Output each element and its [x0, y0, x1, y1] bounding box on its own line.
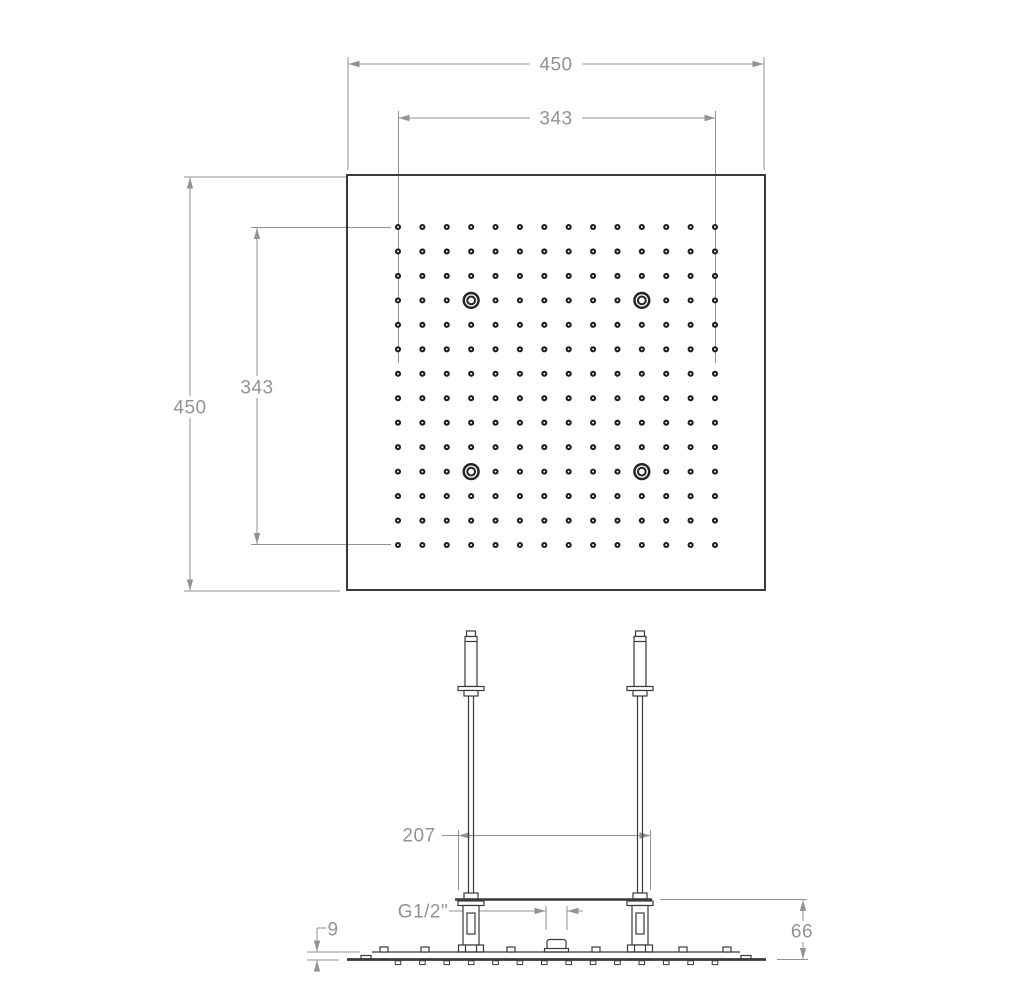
spray-nozzle: [395, 346, 401, 352]
spray-nozzle: [639, 493, 645, 499]
plate-nozzle-tab: [420, 961, 426, 965]
pipe-lower-nut: [464, 893, 478, 899]
spray-nozzle: [492, 224, 498, 230]
spray-nozzle: [444, 420, 450, 426]
spray-nozzle: [688, 224, 694, 230]
spray-nozzle: [517, 224, 523, 230]
spray-nozzle: [712, 420, 718, 426]
spray-nozzle: [614, 224, 620, 230]
spray-nozzle: [639, 322, 645, 328]
spray-nozzle: [395, 273, 401, 279]
spray-nozzle: [639, 542, 645, 548]
spray-nozzle: [614, 542, 620, 548]
spray-nozzle: [639, 273, 645, 279]
plate-nozzle-tab: [615, 961, 621, 965]
spray-nozzle: [639, 517, 645, 523]
spray-nozzle: [639, 395, 645, 401]
spray-nozzle: [688, 322, 694, 328]
dimension-label: 343: [240, 378, 273, 399]
plate-nozzle-tab: [444, 961, 450, 965]
plate-nozzle-tab: [517, 961, 523, 965]
pipe-cap: [467, 631, 476, 637]
shower-head-technical-drawing: 450 343 450 343: [0, 0, 1029, 1000]
spray-nozzle: [517, 346, 523, 352]
spray-nozzle: [541, 420, 547, 426]
spray-nozzle: [517, 248, 523, 254]
spray-nozzle: [419, 395, 425, 401]
spray-nozzle: [566, 444, 572, 450]
spray-nozzle: [492, 248, 498, 254]
spray-nozzle: [688, 444, 694, 450]
plate-nozzle-tab: [712, 961, 718, 965]
spray-nozzle: [688, 346, 694, 352]
spray-nozzle: [492, 444, 498, 450]
spray-nozzle: [517, 493, 523, 499]
plate-top-clip: [679, 947, 687, 952]
spray-nozzle: [419, 273, 425, 279]
spray-nozzle: [614, 346, 620, 352]
spray-nozzle: [419, 420, 425, 426]
spray-nozzle: [492, 469, 498, 475]
spray-nozzle: [444, 346, 450, 352]
spray-nozzle: [541, 444, 547, 450]
spray-nozzle: [663, 248, 669, 254]
spray-nozzle: [639, 224, 645, 230]
spray-nozzle: [590, 493, 596, 499]
spray-nozzle: [566, 346, 572, 352]
spray-nozzle: [492, 273, 498, 279]
spray-nozzle: [444, 493, 450, 499]
spray-nozzle: [468, 493, 474, 499]
dim-pipe-spacing: 207: [402, 826, 650, 891]
spray-nozzle: [688, 395, 694, 401]
spray-nozzle: [590, 420, 596, 426]
spray-nozzle: [444, 297, 450, 303]
spray-nozzle: [712, 297, 718, 303]
plate-top-clip: [421, 947, 429, 952]
spray-nozzle: [395, 420, 401, 426]
spray-nozzle: [541, 248, 547, 254]
spray-nozzle: [395, 371, 401, 377]
spray-nozzle: [419, 297, 425, 303]
spray-nozzle: [444, 444, 450, 450]
pipe-upper-tube: [465, 637, 477, 687]
spray-nozzle: [712, 493, 718, 499]
spray-nozzle: [517, 273, 523, 279]
spray-nozzle: [419, 322, 425, 328]
spray-nozzle: [712, 395, 718, 401]
spray-nozzle: [590, 371, 596, 377]
spray-nozzle: [688, 493, 694, 499]
spray-nozzle: [444, 322, 450, 328]
spray-nozzle: [712, 517, 718, 523]
spray-nozzle: [517, 517, 523, 523]
spray-nozzle: [468, 542, 474, 548]
plate-nozzle-row: [395, 961, 718, 965]
spray-nozzle: [517, 444, 523, 450]
spray-nozzle: [517, 542, 523, 548]
plate-nozzle-tab: [639, 961, 645, 965]
spray-nozzle: [541, 322, 547, 328]
spray-nozzle: [688, 248, 694, 254]
spray-nozzle: [590, 469, 596, 475]
spray-nozzle: [395, 297, 401, 303]
plate-top-clip: [723, 947, 731, 952]
side-view-elevation: 207 G1/2" 9 66: [307, 631, 817, 969]
spray-nozzle: [541, 493, 547, 499]
spray-nozzle: [663, 273, 669, 279]
spray-nozzle: [468, 273, 474, 279]
spray-nozzle: [492, 297, 498, 303]
spray-nozzle: [541, 273, 547, 279]
spray-nozzle: [712, 371, 718, 377]
spray-nozzle: [590, 517, 596, 523]
spray-nozzle: [517, 371, 523, 377]
spray-nozzle: [688, 420, 694, 426]
spray-nozzle: [566, 224, 572, 230]
spray-nozzle: [566, 297, 572, 303]
spray-nozzle: [541, 371, 547, 377]
spray-nozzle: [614, 493, 620, 499]
spray-nozzle: [419, 346, 425, 352]
spray-nozzle: [663, 420, 669, 426]
spray-nozzle: [492, 322, 498, 328]
spray-nozzle: [444, 273, 450, 279]
spray-nozzle: [590, 346, 596, 352]
dim-plate-thickness: 9: [307, 920, 360, 970]
spray-nozzle: [541, 517, 547, 523]
spray-nozzle: [395, 395, 401, 401]
spray-nozzle: [590, 322, 596, 328]
spray-nozzle: [614, 297, 620, 303]
plate-nozzle-tab: [566, 961, 572, 965]
spray-nozzle: [395, 224, 401, 230]
plate-nozzle-tab: [688, 961, 694, 965]
spray-fitting: [634, 293, 649, 308]
pipe-foot: [459, 945, 484, 952]
plate-nozzle-tab: [590, 961, 596, 965]
spray-nozzle: [541, 224, 547, 230]
spray-nozzle: [663, 517, 669, 523]
spray-nozzle: [688, 273, 694, 279]
spray-nozzle: [492, 395, 498, 401]
inlet-body: [547, 940, 566, 950]
spray-nozzle: [468, 346, 474, 352]
spray-nozzle: [468, 322, 474, 328]
pipe-lower-flange: [458, 901, 484, 906]
spray-nozzle: [492, 493, 498, 499]
spray-nozzle: [492, 371, 498, 377]
spray-fitting: [464, 464, 479, 479]
spray-nozzle: [517, 420, 523, 426]
spray-nozzle: [663, 371, 669, 377]
spray-nozzle: [688, 517, 694, 523]
spray-nozzle: [614, 444, 620, 450]
spray-nozzle: [688, 371, 694, 377]
spray-nozzle: [395, 322, 401, 328]
spray-nozzle: [444, 542, 450, 548]
spray-nozzle: [663, 493, 669, 499]
spray-nozzle: [566, 248, 572, 254]
spray-nozzle: [663, 322, 669, 328]
spray-nozzle: [444, 469, 450, 475]
spray-nozzle: [639, 420, 645, 426]
spray-nozzle: [468, 444, 474, 450]
spray-nozzle: [492, 517, 498, 523]
spray-nozzle: [566, 371, 572, 377]
plate-nozzle-tab: [468, 961, 474, 965]
spray-nozzle: [468, 517, 474, 523]
spray-nozzle: [419, 469, 425, 475]
spray-nozzle: [712, 322, 718, 328]
spray-nozzle: [492, 420, 498, 426]
spray-nozzle: [590, 542, 596, 548]
pipe-upper-nut: [464, 691, 478, 697]
spray-nozzle: [444, 517, 450, 523]
spray-nozzle: [688, 469, 694, 475]
spray-nozzle: [590, 224, 596, 230]
spray-nozzle: [395, 542, 401, 548]
spray-nozzle: [639, 346, 645, 352]
spray-nozzle: [663, 542, 669, 548]
spray-nozzle: [468, 420, 474, 426]
spray-nozzle: [419, 371, 425, 377]
plate-top-clip: [507, 947, 515, 952]
spray-nozzle: [468, 248, 474, 254]
spray-nozzle: [663, 444, 669, 450]
spray-nozzle: [663, 395, 669, 401]
spray-nozzle: [566, 493, 572, 499]
spray-nozzle: [541, 469, 547, 475]
spray-nozzle: [444, 224, 450, 230]
supply-pipe-right: [627, 631, 653, 952]
spray-nozzle: [688, 297, 694, 303]
spray-nozzle: [419, 542, 425, 548]
spray-nozzle: [419, 444, 425, 450]
spray-nozzle: [712, 469, 718, 475]
spray-nozzle: [590, 297, 596, 303]
spray-nozzle: [444, 248, 450, 254]
spray-nozzle: [590, 444, 596, 450]
dim-nozzle-field-height: 343: [232, 228, 391, 545]
spray-nozzle: [468, 224, 474, 230]
spray-nozzle: [566, 420, 572, 426]
spray-nozzle: [419, 517, 425, 523]
spray-nozzle: [492, 346, 498, 352]
spray-nozzle: [566, 517, 572, 523]
spray-nozzle: [614, 517, 620, 523]
plate-nozzle-tab: [493, 961, 499, 965]
spray-nozzle: [663, 224, 669, 230]
spray-nozzle: [419, 224, 425, 230]
spray-nozzle: [663, 297, 669, 303]
spray-nozzle: [395, 493, 401, 499]
showerhead-panel-outline: [347, 175, 765, 590]
spray-nozzle: [395, 517, 401, 523]
plate-nozzle-tab: [395, 961, 401, 965]
dimension-label: 450: [539, 55, 572, 76]
spray-nozzle: [468, 395, 474, 401]
supply-pipe-left: [458, 631, 484, 952]
spray-nozzle: [517, 469, 523, 475]
spray-nozzle: [614, 248, 620, 254]
spray-nozzle: [712, 542, 718, 548]
spray-nozzle: [639, 444, 645, 450]
spray-nozzle: [541, 395, 547, 401]
spray-nozzle: [395, 248, 401, 254]
spray-nozzle: [614, 322, 620, 328]
spray-fitting: [634, 464, 649, 479]
drawing-sheet: 450 343 450 343: [0, 0, 1029, 1000]
spray-nozzle: [614, 469, 620, 475]
spray-nozzle: [395, 444, 401, 450]
spray-nozzle: [614, 371, 620, 377]
spray-nozzle: [566, 542, 572, 548]
spray-nozzle: [712, 346, 718, 352]
dimension-label: G1/2": [398, 902, 448, 923]
spray-nozzle: [712, 248, 718, 254]
spray-nozzle: [444, 395, 450, 401]
spray-nozzle: [614, 273, 620, 279]
spray-nozzle: [590, 248, 596, 254]
plate-nozzle-tab: [542, 961, 548, 965]
spray-nozzle: [492, 542, 498, 548]
spray-nozzle: [639, 371, 645, 377]
dimension-label: 343: [539, 109, 572, 130]
spray-nozzle: [566, 469, 572, 475]
dimension-label: 9: [327, 920, 338, 941]
spray-nozzle: [541, 346, 547, 352]
spray-nozzle: [541, 542, 547, 548]
spray-nozzle: [395, 469, 401, 475]
top-view-plan: 450 343 450 343: [165, 53, 765, 591]
spray-nozzle: [566, 322, 572, 328]
spray-nozzle: [663, 469, 669, 475]
spray-nozzle: [468, 371, 474, 377]
spray-nozzle: [712, 224, 718, 230]
plate-nozzle-tab: [663, 961, 669, 965]
nozzle-grid: [395, 224, 718, 548]
pipe-body: [463, 906, 479, 946]
spray-nozzle: [712, 273, 718, 279]
spray-nozzle: [517, 322, 523, 328]
spray-nozzle: [419, 493, 425, 499]
spray-nozzle: [639, 248, 645, 254]
spray-nozzle: [590, 273, 596, 279]
spray-nozzle: [517, 395, 523, 401]
spray-nozzle: [517, 297, 523, 303]
dimension-label: 66: [791, 922, 813, 943]
spray-nozzle: [590, 395, 596, 401]
spray-nozzle: [444, 371, 450, 377]
spray-nozzle: [541, 297, 547, 303]
dimension-label: 450: [173, 398, 206, 419]
spray-nozzle: [419, 248, 425, 254]
spray-nozzle: [663, 346, 669, 352]
plate-top-clip: [592, 947, 600, 952]
dimension-label: 207: [402, 826, 435, 847]
spray-nozzle: [566, 273, 572, 279]
spray-nozzle: [614, 420, 620, 426]
spray-nozzle: [614, 395, 620, 401]
spray-nozzle: [712, 444, 718, 450]
center-inlet: [545, 940, 569, 953]
spray-nozzle: [566, 395, 572, 401]
plate-top-clip: [380, 947, 388, 952]
dim-inlet-thread: G1/2": [398, 902, 583, 931]
spray-nozzle: [688, 542, 694, 548]
spray-fitting: [464, 293, 479, 308]
